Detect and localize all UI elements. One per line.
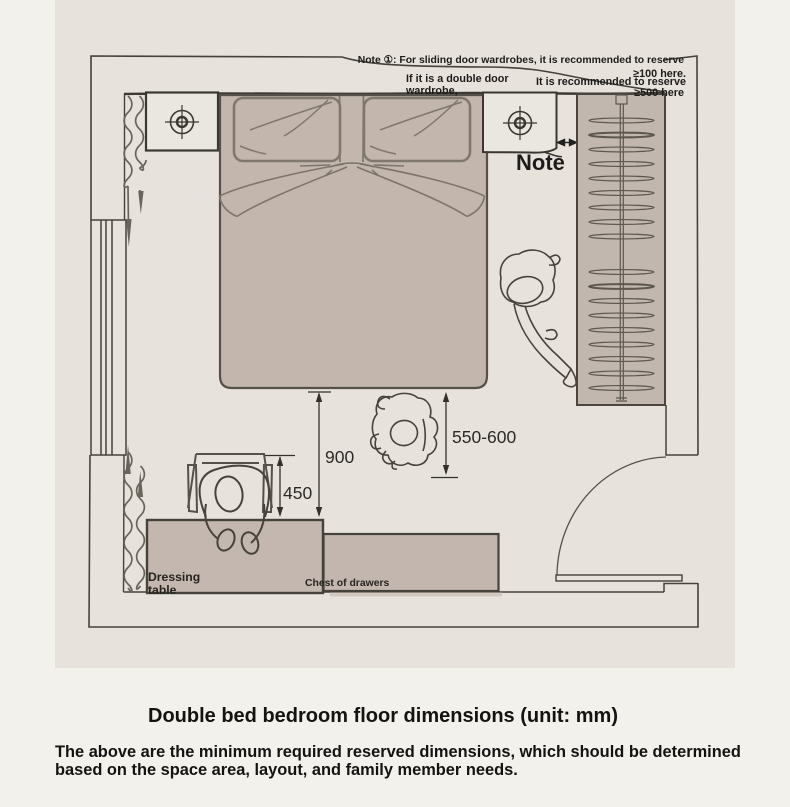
svg-text:wardrobe,: wardrobe, <box>405 85 458 97</box>
svg-text:900: 900 <box>325 447 354 467</box>
svg-text:450: 450 <box>283 483 312 503</box>
svg-text:Double bed bedroom floor dimen: Double bed bedroom floor dimensions (uni… <box>148 705 618 727</box>
svg-text:550-600: 550-600 <box>452 427 516 447</box>
svg-text:≥500 here: ≥500 here <box>634 87 684 99</box>
svg-text:The above are the minimum requ: The above are the minimum required reser… <box>55 743 741 761</box>
svg-text:Dressing: Dressing <box>148 570 200 584</box>
svg-text:Note: Note <box>516 150 565 175</box>
svg-text:Chest of drawers: Chest of drawers <box>305 578 390 589</box>
svg-text:based on the space area, layou: based on the space area, layout, and fam… <box>55 761 518 779</box>
svg-text:table: table <box>148 583 177 597</box>
svg-text:If it is a double door: If it is a double door <box>406 73 509 85</box>
svg-text:Note ①: For sliding door wardr: Note ①: For sliding door wardrobes, it i… <box>358 55 685 66</box>
